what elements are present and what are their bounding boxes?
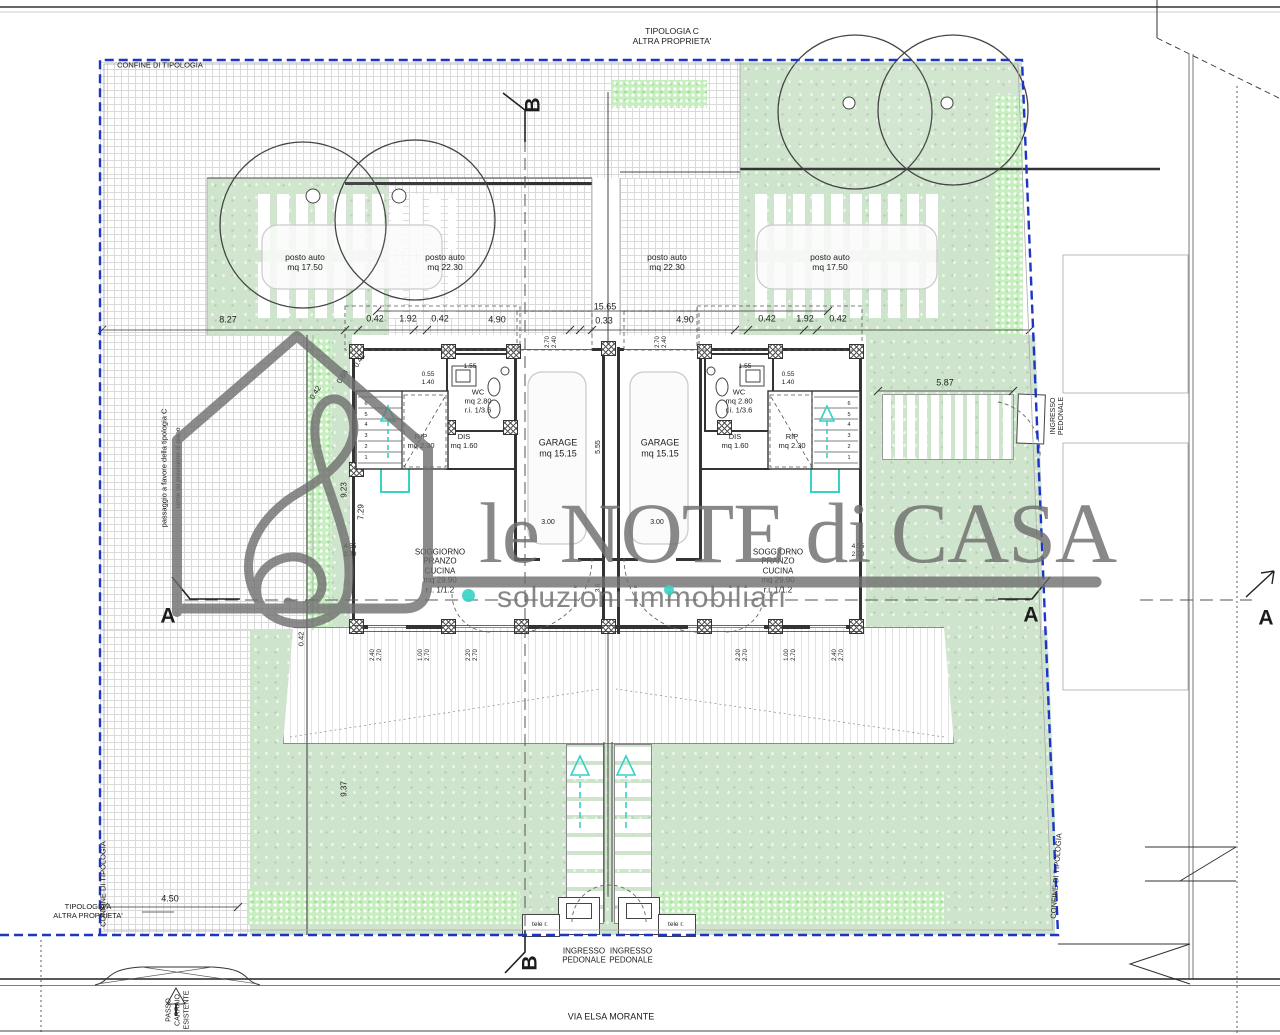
site-plan: TIPOLOGIA C ALTRA PROPRIETA'CONFINE DI T… [0,0,1280,1035]
plan-linework [0,0,1280,1035]
